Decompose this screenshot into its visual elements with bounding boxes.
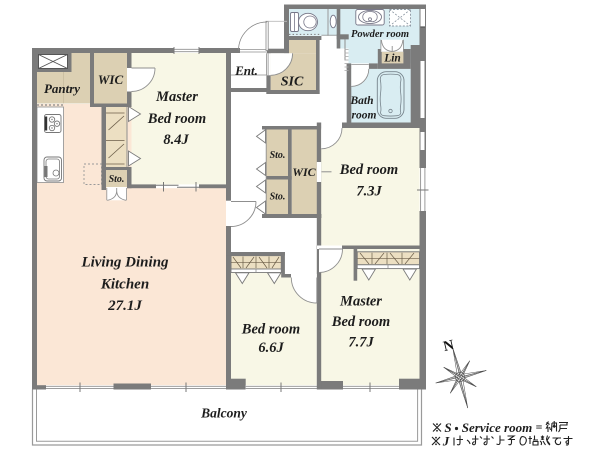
svg-text:Sto.: Sto.: [270, 192, 286, 203]
svg-text:Bed room: Bed room: [331, 314, 390, 330]
svg-text:Sto.: Sto.: [270, 150, 286, 161]
svg-text:Sto.: Sto.: [109, 174, 125, 185]
svg-text:Living Dining: Living Dining: [80, 255, 169, 271]
svg-text:Master: Master: [339, 294, 382, 310]
svg-text:Powder room: Powder room: [351, 29, 409, 40]
svg-text:WIC: WIC: [292, 165, 316, 179]
svg-text:Bath: Bath: [349, 95, 373, 107]
svg-text:Kitchen: Kitchen: [100, 277, 149, 293]
svg-text:Pantry: Pantry: [44, 81, 80, 96]
svg-text:Ent.: Ent.: [234, 63, 258, 78]
svg-text:Bed room: Bed room: [147, 111, 206, 127]
svg-text:8.4J: 8.4J: [163, 132, 189, 148]
svg-text:Lin: Lin: [383, 53, 401, 65]
svg-text:room: room: [352, 110, 377, 122]
svg-text:6.6J: 6.6J: [258, 340, 284, 356]
svg-text:Bed room: Bed room: [241, 322, 300, 338]
svg-text:WIC: WIC: [98, 72, 124, 87]
svg-text:J: J: [442, 434, 450, 449]
svg-text:Balcony: Balcony: [200, 406, 248, 421]
svg-text:Master: Master: [155, 89, 198, 105]
svg-text:=: =: [536, 420, 543, 434]
svg-text:27.1J: 27.1J: [107, 298, 142, 314]
svg-text:Bed room: Bed room: [339, 162, 398, 178]
svg-text:Service room: Service room: [462, 420, 532, 435]
svg-text:SIC: SIC: [281, 75, 304, 90]
svg-text:7.7J: 7.7J: [348, 335, 374, 351]
svg-text:7.3J: 7.3J: [356, 184, 382, 200]
